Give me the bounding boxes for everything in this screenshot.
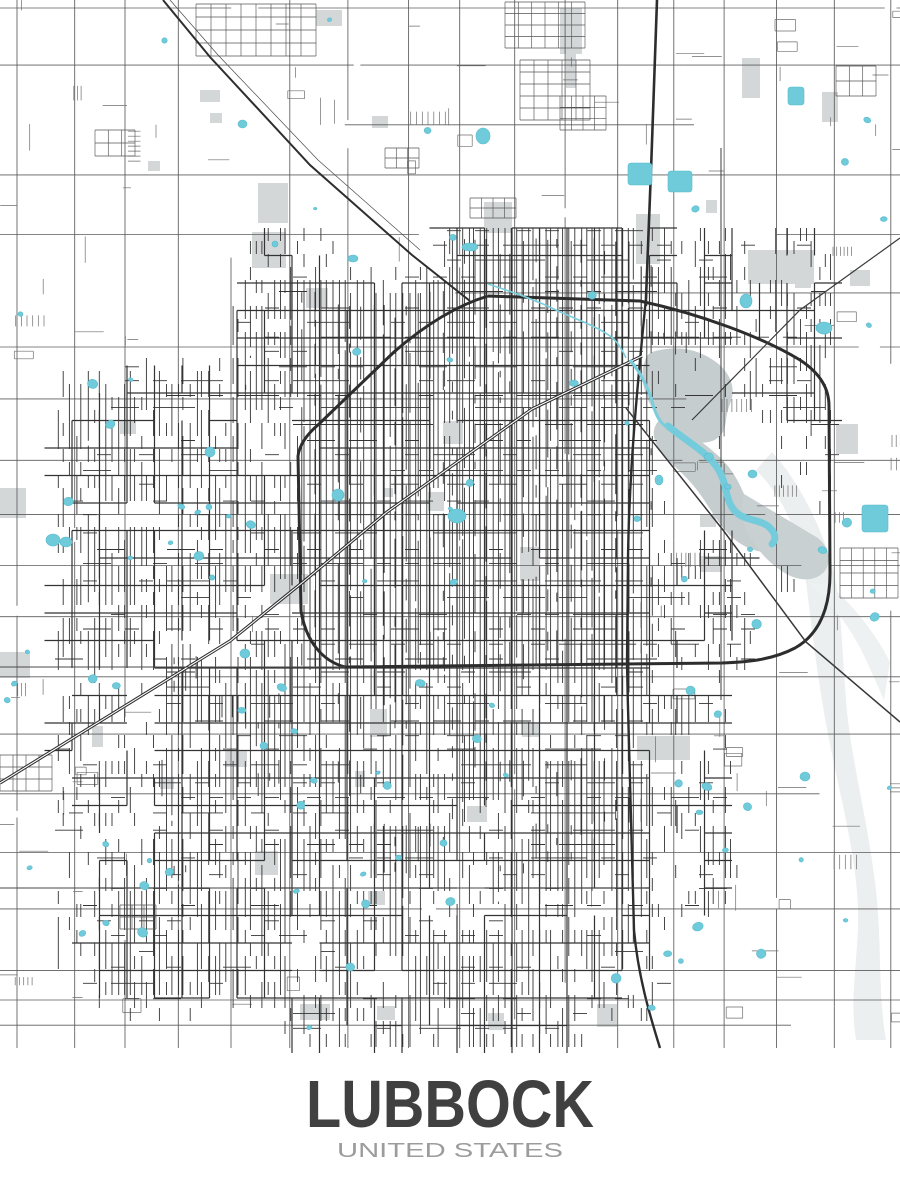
svg-text:UNITED STATES: UNITED STATES	[337, 1139, 563, 1162]
svg-text:LUBBOCK: LUBBOCK	[306, 1067, 594, 1142]
